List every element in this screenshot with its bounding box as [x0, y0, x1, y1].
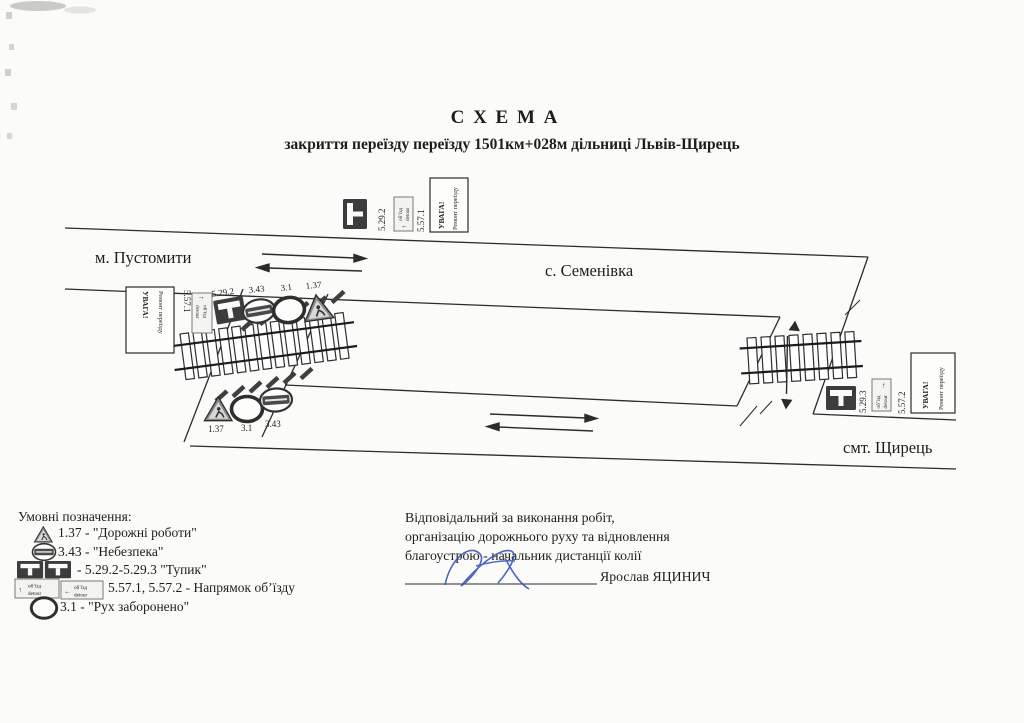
no-entry-sign-label: 3.1 [280, 282, 292, 293]
no-entry-sign-icon [232, 397, 263, 422]
no-entry-sign-label: 3.1 [241, 423, 252, 433]
legend-item: 5.57.1, 5.57.2 - Напрямок об’їзду [108, 580, 295, 595]
svg-text:↑: ↑ [19, 586, 23, 594]
detour-sign-icon: ↑ об’їзд detour [394, 197, 413, 231]
scanned-scheme-page: С Х Е М А закриття переїзду переїзду 150… [0, 0, 1024, 723]
legend-item: 3.43 - "Небезпека" [58, 544, 163, 559]
dead-end-sign-label: 5.29.2 [377, 209, 387, 232]
warning-box: УВАГА! Ремонт переїзду [430, 178, 468, 232]
svg-text:↑: ↑ [197, 296, 205, 300]
sign-cluster-lower: 1.37 3.1 3.43 [204, 387, 292, 434]
legend-item: 3.1 - "Рух заборонено" [60, 599, 189, 614]
warning-box: УВАГА! Ремонт переїзду [126, 287, 174, 353]
svg-text:detour: detour [74, 593, 88, 599]
svg-text:об’їзд: об’їзд [875, 395, 882, 408]
scheme-drawing: С Х Е М А закриття переїзду переїзду 150… [0, 0, 1024, 723]
roadworks-sign-icon [302, 293, 334, 322]
detour-sign-icon: ← об’їзд detour [61, 581, 103, 599]
detour-sign-icon: ↑ об’їзд detour [15, 579, 59, 598]
dead-end-sign-icon [17, 561, 43, 578]
scheme-title: С Х Е М А [451, 107, 560, 128]
svg-text:УВАГА!: УВАГА! [921, 382, 930, 409]
roadworks-sign-icon [204, 397, 232, 421]
warning-box: УВАГА! Ремонт переїзду [911, 353, 955, 413]
danger-sign-label: 3.43 [265, 419, 281, 429]
danger-sign-icon [259, 387, 293, 412]
svg-text:об’їзд: об’їзд [28, 583, 41, 590]
dead-end-sign-label: 5.29.2 [211, 286, 235, 299]
svg-text:←: ← [64, 588, 71, 596]
legend: Умовні позначення: 1.37 - "Дорожні робот… [15, 509, 295, 618]
legend-item: 1.37 - "Дорожні роботи" [58, 525, 197, 540]
svg-text:detour: detour [28, 591, 42, 597]
svg-text:об’їзд: об’їзд [397, 208, 404, 221]
place-label-semenivka: с. Семенівка [545, 261, 634, 280]
danger-sign-icon [241, 297, 277, 325]
svg-text:detour: detour [883, 395, 889, 409]
dead-end-sign-icon [826, 386, 856, 410]
responsible-line: організацію дорожнього руху та відновлен… [405, 529, 670, 544]
direction-arrows-top [257, 254, 366, 272]
svg-text:Ремонт переїзду: Ремонт переїзду [938, 366, 945, 410]
responsible-block: Відповідальний за виконання робіт, орган… [405, 510, 710, 589]
legend-item: - 5.29.2-5.29.3 "Тупик" [77, 562, 207, 577]
scan-artifact [5, 1, 96, 139]
dead-end-sign-label: 5.29.3 [858, 390, 868, 413]
place-label-pustomyty: м. Пустомити [95, 248, 192, 267]
no-entry-sign-icon [31, 598, 56, 619]
roadworks-sign-label: 1.37 [208, 424, 224, 434]
detour-sign-label: 5.57.1 [182, 290, 192, 313]
sign-cluster-top: 5.29.2 ↑ об’їзд detour 5.57.1 УВАГА! Рем… [343, 178, 468, 232]
sign-cluster-right: 5.29.3 об’їзд detour → 5.57.2 УВАГА! Рем… [826, 353, 955, 414]
railway-crossing-right [739, 331, 864, 384]
danger-sign-icon [32, 544, 55, 561]
svg-text:↑: ↑ [401, 225, 409, 229]
svg-text:Ремонт переїзду: Ремонт переїзду [452, 186, 459, 230]
svg-text:УВАГА!: УВАГА! [141, 291, 150, 318]
svg-text:detour: detour [194, 305, 200, 319]
legend-heading: Умовні позначення: [18, 509, 132, 524]
danger-sign-label: 3.43 [248, 283, 265, 295]
responsible-line: Відповідальний за виконання робіт, [405, 510, 615, 525]
svg-text:→: → [879, 382, 887, 389]
dead-end-sign-icon [45, 561, 71, 578]
svg-text:УВАГА!: УВАГА! [437, 202, 446, 229]
detour-sign-icon: ↑ об’їзд detour [192, 293, 212, 333]
svg-text:detour: detour [405, 207, 411, 221]
svg-text:об’їзд: об’їзд [202, 305, 209, 318]
svg-text:об’їзд: об’їзд [74, 584, 87, 591]
scheme-subtitle: закриття переїзду переїзду 1501км+028м д… [284, 136, 739, 153]
responsible-name: Ярослав ЯЦИНИЧ [600, 569, 710, 584]
dead-end-sign-icon [343, 199, 367, 229]
direction-arrows-bottom [487, 414, 597, 431]
detour-sign-label: 5.57.2 [897, 392, 907, 415]
roadworks-sign-icon [34, 527, 52, 543]
detour-sign-label: 5.57.1 [416, 210, 426, 233]
roadworks-sign-label: 1.37 [305, 279, 322, 291]
detour-sign-icon: об’їзд detour → [872, 379, 891, 411]
dead-end-sign-icon [213, 296, 247, 325]
svg-text:Ремонт переїзду: Ремонт переїзду [157, 291, 164, 335]
place-label-shchyrets: смт. Щирець [843, 438, 933, 457]
responsible-line: благоустрою - начальник дистанції колії [405, 548, 642, 563]
